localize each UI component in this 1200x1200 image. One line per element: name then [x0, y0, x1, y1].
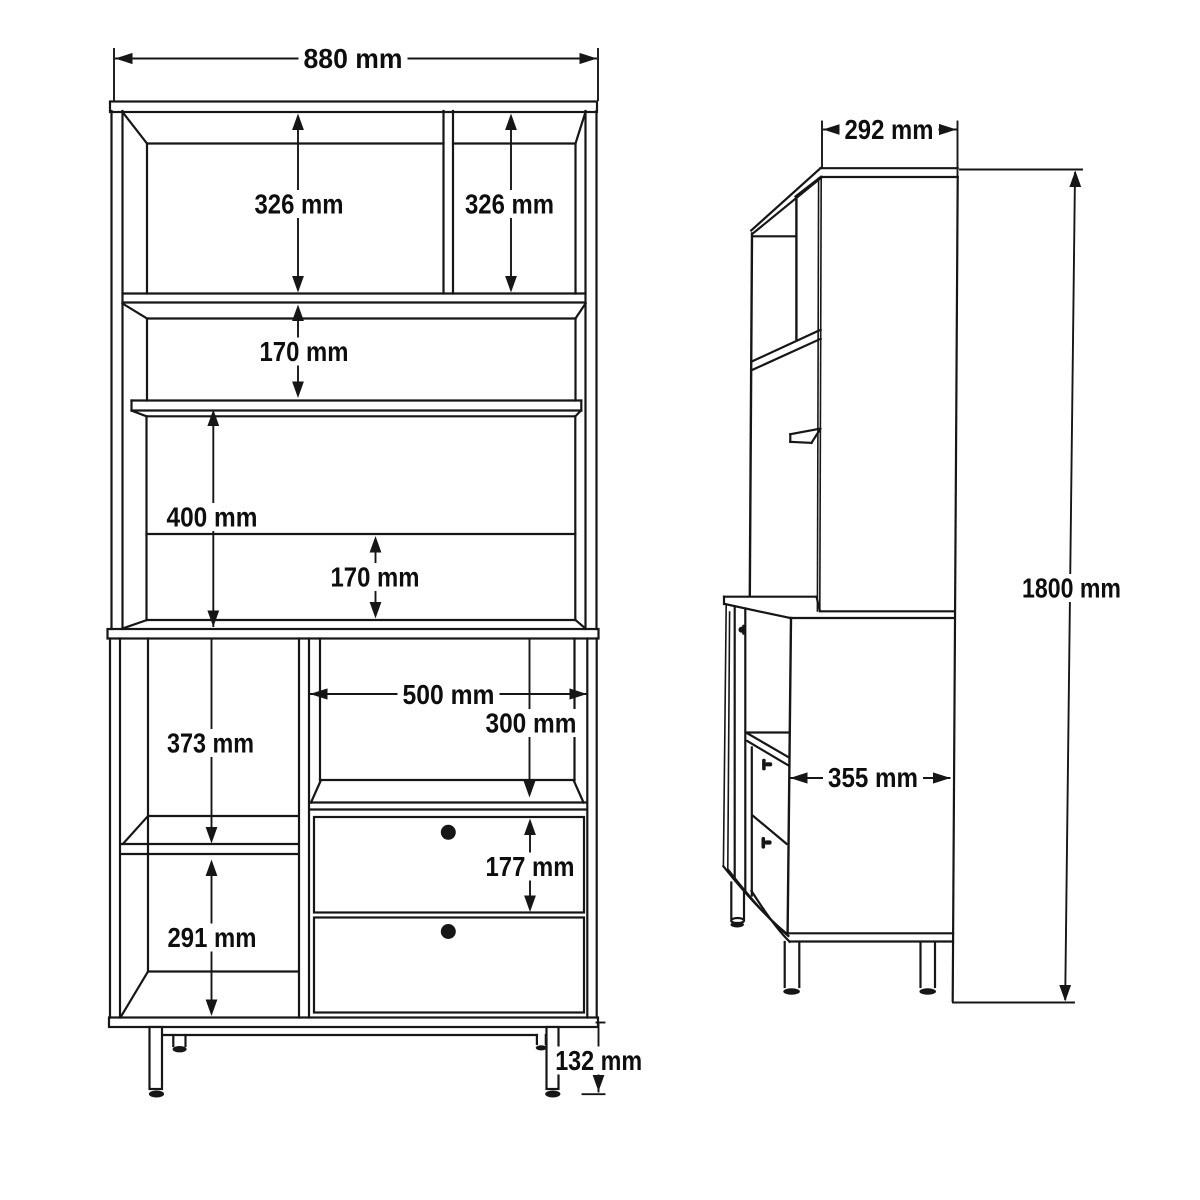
svg-text:300 mm: 300 mm	[486, 708, 577, 739]
svg-text:500 mm: 500 mm	[403, 679, 495, 710]
svg-text:132 mm: 132 mm	[555, 1045, 642, 1076]
svg-text:177 mm: 177 mm	[486, 851, 575, 882]
svg-text:880 mm: 880 mm	[304, 43, 403, 74]
svg-text:400 mm: 400 mm	[167, 502, 258, 533]
svg-text:355 mm: 355 mm	[828, 762, 918, 793]
svg-text:373 mm: 373 mm	[167, 728, 254, 759]
svg-text:291 mm: 291 mm	[168, 922, 257, 953]
svg-text:170 mm: 170 mm	[331, 562, 420, 593]
svg-text:326 mm: 326 mm	[255, 189, 344, 220]
svg-text:1800 mm: 1800 mm	[1022, 573, 1121, 604]
svg-text:170 mm: 170 mm	[260, 336, 349, 367]
svg-text:292 mm: 292 mm	[845, 114, 934, 145]
svg-text:326 mm: 326 mm	[465, 189, 554, 220]
